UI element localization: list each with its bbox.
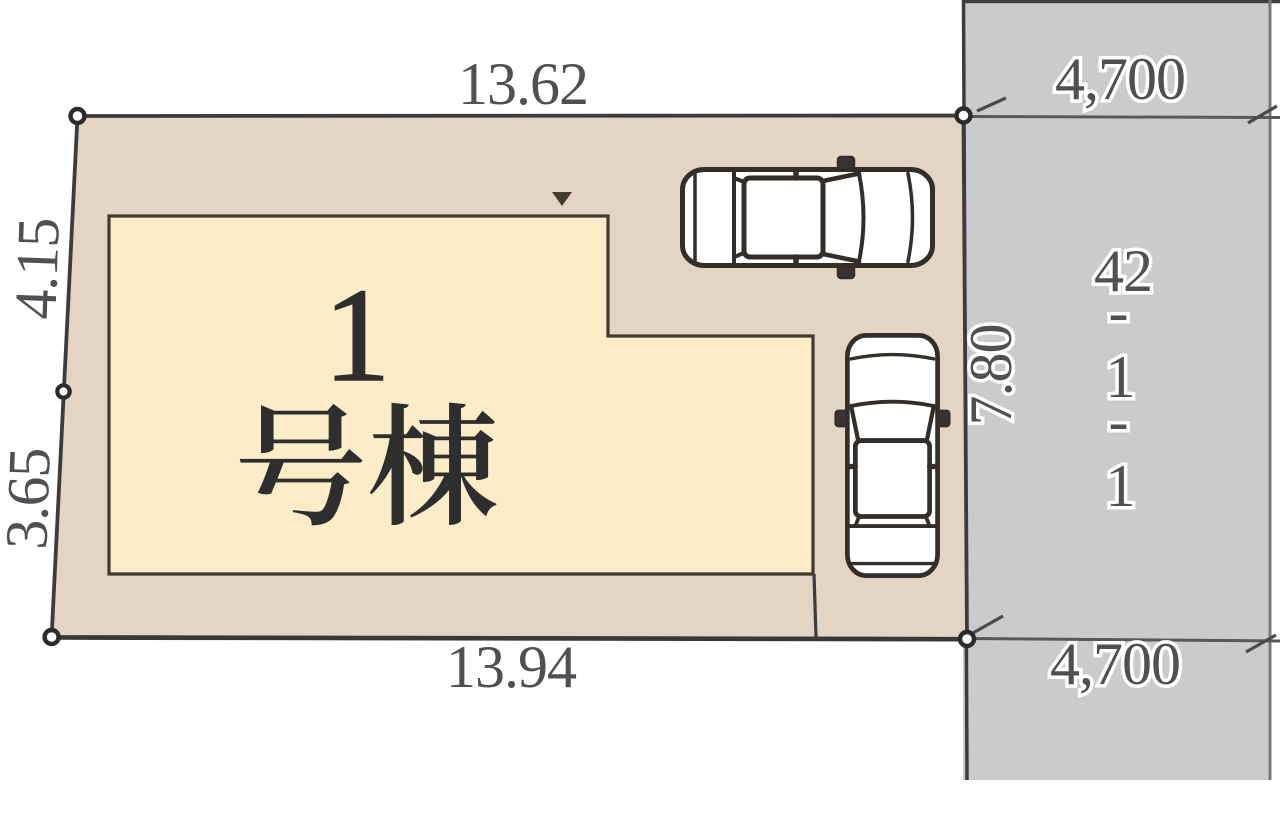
svg-text:4,700: 4,700 <box>1050 631 1180 697</box>
svg-text:4,700: 4,700 <box>1055 46 1185 112</box>
svg-text:13.94: 13.94 <box>446 634 577 700</box>
svg-text:3.65: 3.65 <box>0 447 63 550</box>
svg-text:7.80: 7.80 <box>958 325 1024 426</box>
svg-text:1: 1 <box>324 261 391 409</box>
svg-text:13.62: 13.62 <box>458 51 588 117</box>
svg-text:-: - <box>1109 279 1128 345</box>
svg-text:1: 1 <box>1106 453 1135 519</box>
svg-text:4.15: 4.15 <box>2 217 71 320</box>
svg-text:-: - <box>1109 388 1128 454</box>
